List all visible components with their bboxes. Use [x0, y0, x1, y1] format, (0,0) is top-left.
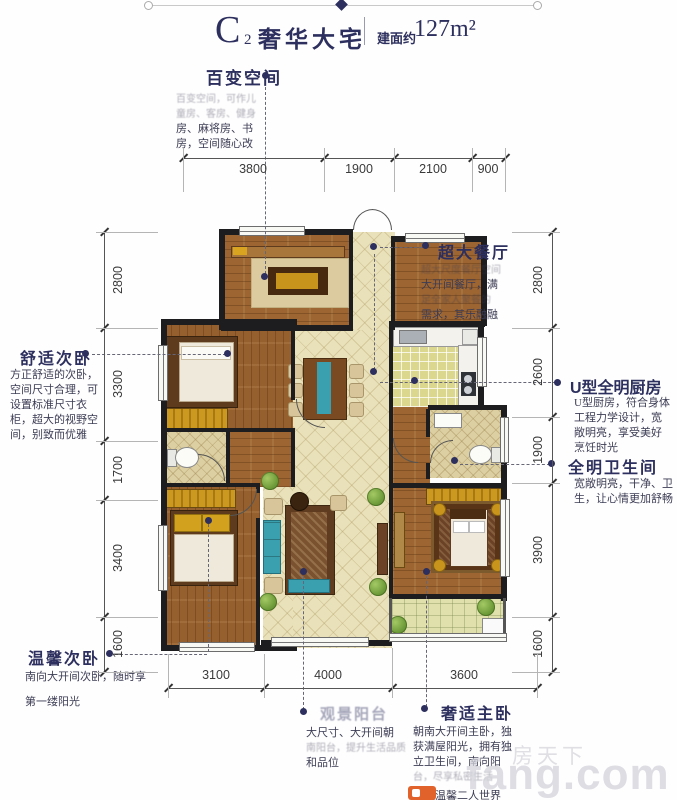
page-title: 奢华大宅: [258, 20, 366, 54]
note-line: 宽敞明亮，干净、卫: [574, 477, 673, 492]
leader-dot: [451, 457, 458, 464]
label-versatile-space: 百变空间: [206, 64, 282, 89]
wall: [349, 229, 353, 330]
note-line: 房，空间随心改: [176, 137, 256, 152]
area-value: 127m²: [414, 16, 476, 43]
note-balcony: 大尺寸、大开间朝 南阳台，提升生活品质 和品位: [306, 726, 406, 771]
window: [501, 500, 509, 576]
armchair: [264, 577, 283, 594]
site-logo-glyph: [412, 789, 420, 797]
title-divider: [364, 17, 365, 45]
floorplan-page: C 2 奢华大宅 建面约 127m²: [0, 0, 677, 800]
dim-ext: [96, 232, 158, 233]
note-line: 空间尺寸合理，可: [10, 383, 98, 398]
label-master-bedroom: 奢适主卧: [441, 700, 513, 724]
bed-mattress: [174, 534, 234, 582]
bath-sink: [434, 413, 462, 428]
watermark-en: fang.com: [466, 750, 670, 800]
wall: [389, 327, 393, 409]
label-dining: 超大餐厅: [438, 239, 510, 263]
dim-value: 2100: [403, 162, 463, 176]
label-kitchen: U型全明厨房: [570, 374, 662, 398]
plant-icon: [259, 593, 277, 611]
wall: [389, 409, 393, 487]
leader-line: [374, 254, 376, 370]
wall: [389, 487, 393, 597]
chair: [349, 402, 364, 417]
note-line: U型厨房，符合身体: [574, 396, 670, 411]
plant-icon: [367, 488, 385, 506]
leader-line: [208, 524, 210, 652]
dim-ext: [392, 648, 393, 698]
dim-value: 3800: [223, 162, 283, 176]
wall: [221, 325, 353, 331]
note-bedroom3: 南向大开间次卧，随时享 第一缕阳光: [25, 670, 146, 710]
ornament-end-circle: [144, 1, 153, 10]
ornament-end-circle: [533, 1, 542, 10]
toilet-bowl: [469, 445, 492, 464]
title-letter: C: [215, 8, 240, 52]
dim-ext: [96, 672, 158, 673]
leader-line: [303, 576, 305, 710]
leader-line: [115, 654, 207, 656]
note-line: 百变空间，可作儿: [176, 92, 256, 107]
title-number: 2: [244, 32, 252, 49]
bed-pillow: [453, 521, 469, 533]
leader-dot: [370, 243, 377, 250]
note-line: 大开间餐厅，满: [421, 278, 501, 293]
chair: [349, 383, 364, 398]
note-dining: 超大尺度餐厅空间 大开间餐厅，满 足全家人聚餐的 需求，其乐融融: [421, 263, 501, 323]
dim-value: 2800: [111, 250, 125, 310]
note-line: 房、麻将房、书: [176, 122, 256, 137]
leader-dot: [421, 705, 428, 712]
dim-ext: [512, 232, 560, 233]
dim-ext: [537, 654, 538, 698]
bench-seat: [394, 512, 405, 568]
note-line: 设置标准尺寸衣: [10, 398, 98, 413]
dim-ext: [96, 441, 158, 442]
plant-icon: [477, 598, 495, 616]
dim-ext: [264, 654, 265, 698]
note-line: 间，别致而优雅: [10, 428, 98, 443]
headboard: [450, 509, 486, 519]
note-line: 需求，其乐融融: [421, 308, 501, 323]
leader-dot: [261, 273, 268, 280]
leader-dot: [370, 368, 377, 375]
burner: [464, 386, 472, 394]
wall: [226, 432, 230, 483]
note-line: 方正舒适的次卧，: [10, 368, 98, 383]
wall: [291, 428, 295, 487]
leader-line: [265, 82, 267, 274]
leader-dot: [224, 350, 231, 357]
dim-ext: [96, 328, 158, 329]
ornament-center-icon: [335, 0, 348, 11]
balcony-window: [390, 634, 506, 641]
area-label: 建面约: [377, 28, 416, 47]
wall: [256, 518, 260, 645]
dim-value: 2800: [531, 250, 545, 310]
round-table: [290, 492, 309, 511]
dim-ext: [512, 417, 560, 418]
dim-value: 3300: [111, 354, 125, 414]
wall: [426, 463, 430, 479]
window: [159, 526, 167, 590]
bench: [288, 579, 330, 593]
note-kitchen: U型厨房，符合身体 工程力学设计，宽 敞明亮，享受美好 烹饪时光: [574, 396, 670, 456]
note-line: 和品位: [306, 756, 406, 771]
leader-dot: [422, 242, 429, 249]
dim-value: 2600: [531, 342, 545, 402]
window: [478, 338, 486, 386]
note-line: 南阳台，提升生活品质: [306, 741, 406, 756]
leader-dot: [205, 517, 212, 524]
note-bedroom2: 方正舒适的次卧， 空间尺寸合理，可 设置标准尺寸衣 柜，超大的视野空 间，别致而…: [10, 368, 98, 443]
dim-line-bottom: [168, 688, 537, 689]
note-line: 超大尺度餐厅空间: [421, 263, 501, 278]
wall: [391, 236, 395, 330]
chair: [349, 364, 364, 379]
side-chair: [330, 495, 347, 511]
label-balcony: 观景阳台: [320, 703, 388, 724]
kitchen-sink: [399, 330, 427, 344]
note-line: 童房、客房、健身: [176, 107, 256, 122]
note-line: 柜，超大的视野空: [10, 413, 98, 428]
wall: [389, 483, 507, 488]
dim-value: 3400: [111, 528, 125, 588]
dim-value: 1600: [111, 614, 125, 674]
armchair: [264, 498, 283, 515]
wall: [389, 594, 507, 599]
dim-value: 1900: [329, 162, 389, 176]
note-line: 大尺寸、大开间朝: [306, 726, 406, 741]
leader-line: [380, 247, 422, 249]
label-bathroom: 全明卫生间: [568, 454, 658, 478]
leader-dot: [411, 377, 418, 384]
decor-box: [233, 247, 247, 255]
dim-value: 4000: [298, 668, 358, 682]
label-bedroom2: 舒适次卧: [20, 345, 92, 369]
dim-ext: [512, 328, 560, 329]
dim-ext: [394, 148, 395, 192]
note-line: 足全家人聚餐的: [421, 293, 501, 308]
entry-door-arc: [353, 209, 373, 230]
plant-icon: [369, 578, 387, 596]
fridge: [462, 329, 478, 345]
dim-line-top: [183, 158, 505, 159]
living-rug-inner: [291, 512, 327, 584]
dim-value: 1600: [531, 614, 545, 674]
dim-value: 1900: [531, 420, 545, 480]
console-table: [231, 246, 345, 258]
tv-console: [377, 523, 388, 575]
window: [501, 418, 508, 462]
note-line: 生，让心情更加舒畅: [574, 492, 673, 507]
leader-dot: [300, 568, 307, 575]
wall: [161, 319, 297, 325]
toilet-tank: [491, 447, 501, 463]
dim-value: 3100: [186, 668, 246, 682]
leader-dot: [554, 379, 561, 386]
note-line: 敞明亮，享受美好: [574, 426, 670, 441]
dim-ext: [512, 483, 560, 484]
note-line: 朝南大开间主卧，独: [413, 725, 512, 740]
wall: [219, 229, 225, 330]
note-line: 工程力学设计，宽: [574, 411, 670, 426]
leader-line: [380, 382, 556, 384]
wall: [291, 330, 295, 400]
dim-ext: [183, 148, 184, 192]
dim-line-left: [104, 232, 105, 672]
leader-dot: [423, 568, 430, 575]
note-line: 第一缕阳光: [25, 695, 146, 710]
wall: [161, 483, 260, 487]
wall: [426, 409, 430, 437]
cabinet-top: [276, 273, 318, 289]
note-bathroom: 宽敞明亮，干净、卫 生，让心情更加舒畅: [574, 477, 673, 507]
dim-value: 900: [458, 162, 518, 176]
note-versatile-space: 百变空间，可作儿 童房、客房、健身 房、麻将房、书 房，空间随心改: [176, 92, 256, 152]
leader-dot: [300, 708, 307, 715]
dim-ext: [324, 148, 325, 192]
bed-pillow-gold: [174, 514, 202, 532]
plant-icon: [261, 472, 279, 490]
dim-ext: [168, 654, 169, 698]
dim-ext: [96, 500, 158, 501]
dim-value: 3600: [434, 668, 494, 682]
dim-line-right: [552, 232, 553, 672]
wardrobe: [166, 489, 236, 508]
window: [240, 227, 304, 235]
nightstand: [433, 503, 446, 516]
window: [180, 643, 254, 651]
entry-door-arc: [372, 209, 392, 230]
wall: [428, 405, 507, 410]
sofa: [263, 520, 281, 574]
label-bedroom3: 温馨次卧: [28, 645, 100, 669]
nightstand: [433, 559, 446, 572]
bed-pillow: [469, 521, 485, 533]
window: [272, 638, 368, 646]
dim-ext: [96, 617, 158, 618]
dim-value: 1700: [111, 440, 125, 500]
toilet-bowl: [175, 447, 199, 468]
dim-value: 3900: [531, 520, 545, 580]
